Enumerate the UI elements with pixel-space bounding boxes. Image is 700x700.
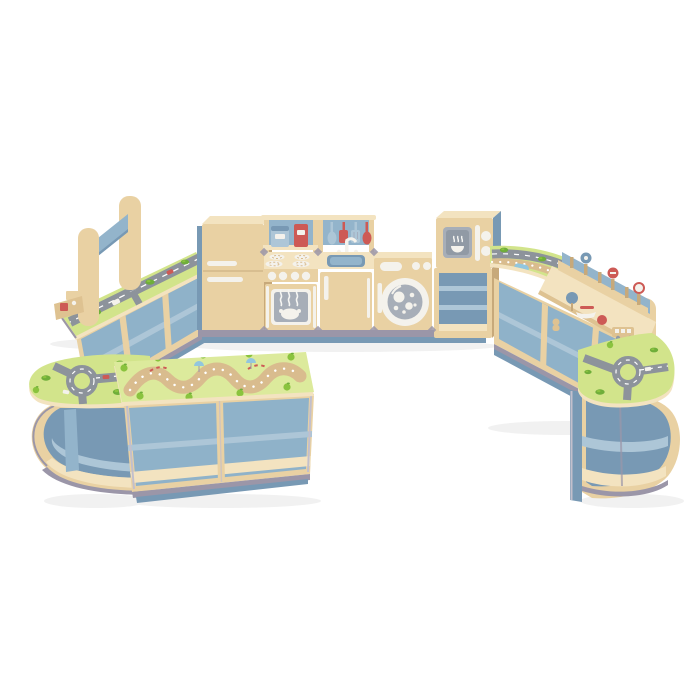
play-cooker	[261, 215, 321, 330]
mixer-toy	[294, 224, 308, 247]
bench-cubby-shelves	[124, 394, 314, 503]
play-washing-machine	[374, 252, 432, 330]
front-right-curved-unit	[570, 328, 682, 502]
gantry-back-upright	[119, 196, 141, 290]
product-photo-play-furniture-set	[0, 0, 700, 700]
sink-cabinet-handle	[324, 276, 329, 300]
washer-porthole	[381, 278, 429, 326]
cooker-splashback	[261, 215, 321, 252]
fridge-freezer-handle	[207, 261, 237, 266]
toy-sign-disc-red	[597, 315, 607, 325]
washer-handle	[378, 283, 383, 313]
oven-door	[265, 284, 317, 330]
play-fridge	[197, 216, 272, 330]
microwave-handle	[475, 225, 480, 261]
front-bench	[108, 345, 320, 503]
kitchen-row	[197, 211, 501, 343]
scene-svg	[0, 0, 700, 700]
microwave-shelf-unit	[434, 263, 499, 338]
coffee-maker-toy	[271, 226, 289, 247]
play-sink	[316, 215, 376, 330]
toy-sign-disc-blue	[566, 292, 578, 304]
fridge-door-handle	[207, 277, 243, 282]
sink-basin	[327, 255, 365, 267]
